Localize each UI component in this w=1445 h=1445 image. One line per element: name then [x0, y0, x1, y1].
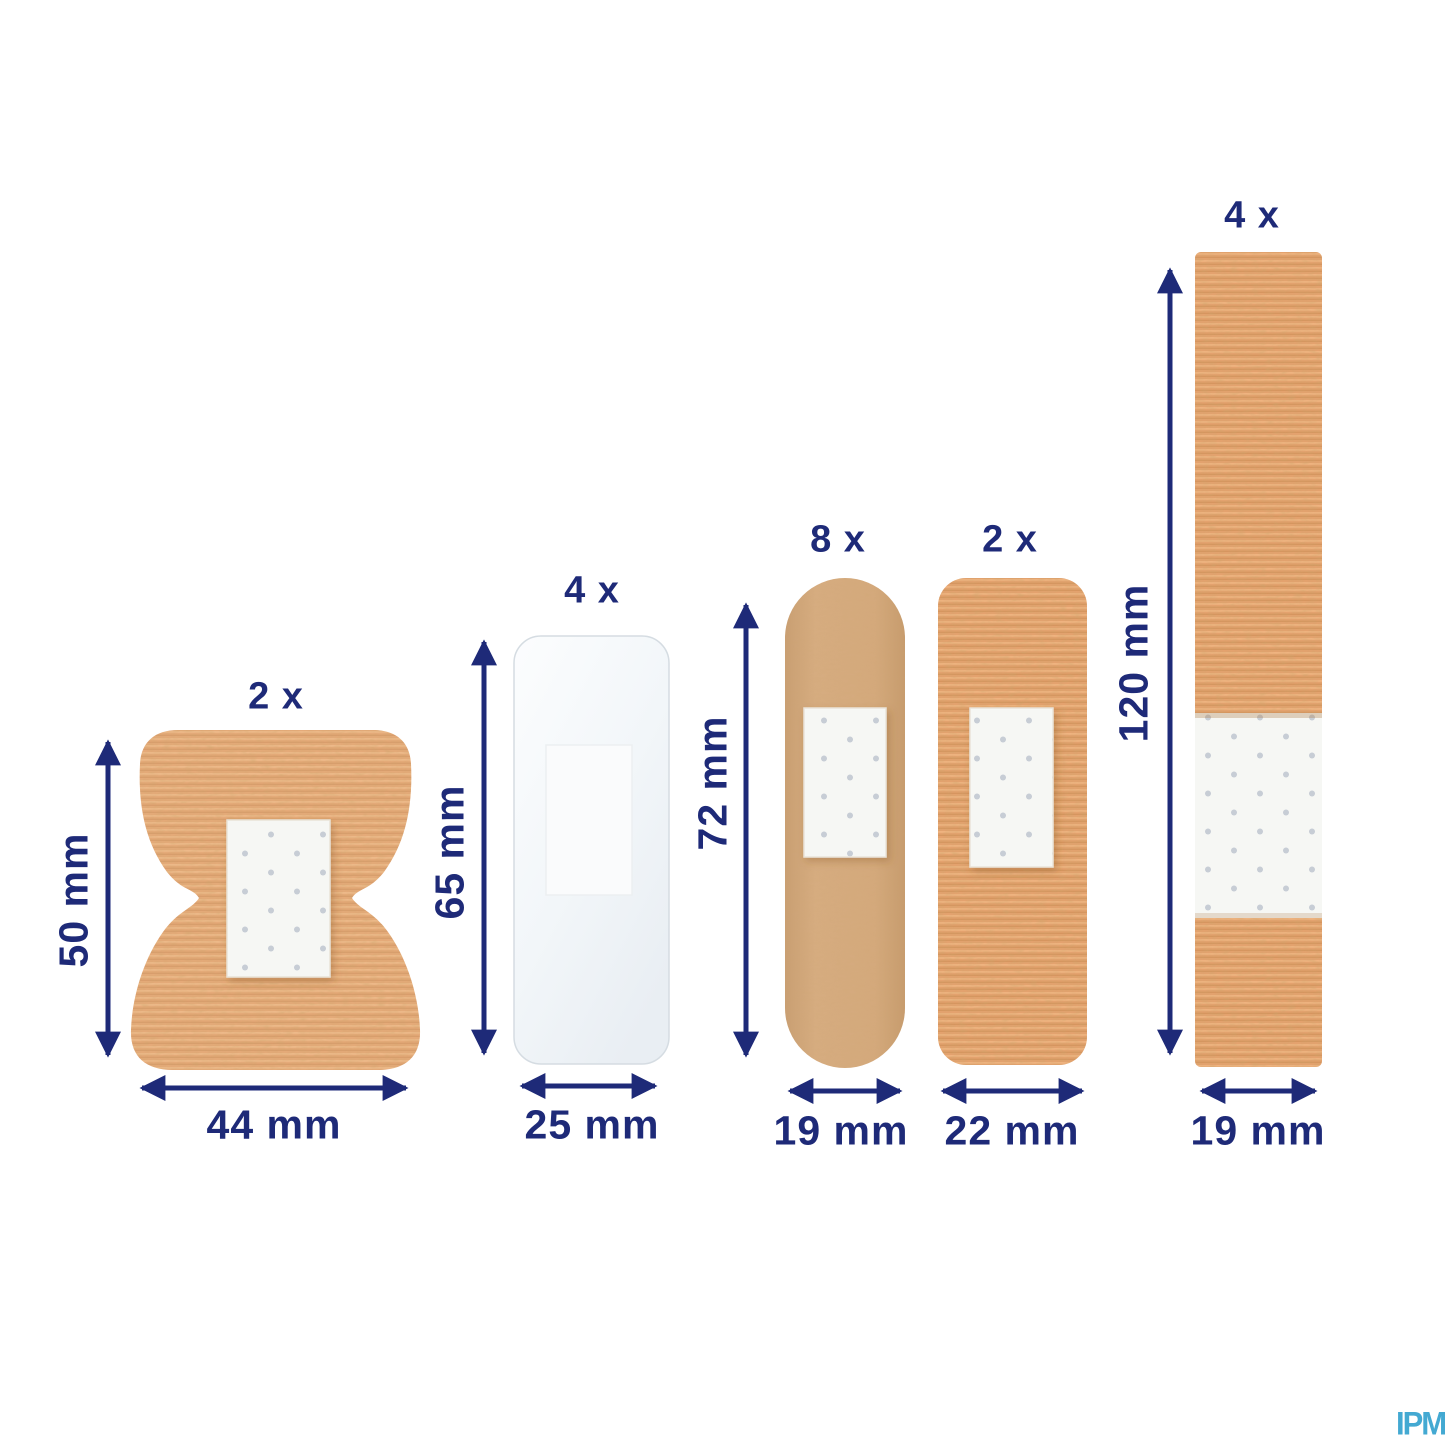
transparent-width-label: 25 mm	[525, 1102, 660, 1149]
wide-strip-plaster	[938, 578, 1087, 1065]
plaster-size-diagram: 2 x 4 x 8 x 2 x 4 x 50 mm 65 mm 72 mm 12…	[0, 0, 1445, 1445]
ipm-watermark: IPM	[1396, 1405, 1445, 1443]
classic-count-label: 8 x	[810, 519, 866, 562]
transparent-count-label: 4 x	[564, 570, 620, 613]
transparent-length-label: 65 mm	[427, 785, 474, 920]
fingertip-plaster	[128, 730, 423, 1070]
wide-strip-pad	[970, 708, 1053, 867]
long-count-label: 4 x	[1224, 195, 1280, 238]
fingertip-length-label: 50 mm	[51, 833, 98, 968]
wide-width-label: 22 mm	[945, 1108, 1080, 1155]
classic-width-label: 19 mm	[774, 1108, 909, 1155]
long-strip-pad	[1195, 713, 1322, 918]
fingertip-width-label: 44 mm	[207, 1102, 342, 1149]
fingertip-plaster-pad	[227, 820, 330, 977]
wide-count-label: 2 x	[982, 519, 1038, 562]
classic-length-label: 72 mm	[690, 716, 737, 851]
classic-strip-plaster	[785, 578, 905, 1068]
long-strip-plaster	[1195, 252, 1322, 1067]
long-width-label: 19 mm	[1191, 1108, 1326, 1155]
fingertip-count-label: 2 x	[248, 676, 304, 719]
transparent-plaster	[513, 635, 670, 1065]
long-length-label: 120 mm	[1111, 584, 1158, 743]
classic-strip-pad	[804, 708, 886, 857]
transparent-plaster-pad	[546, 745, 632, 895]
